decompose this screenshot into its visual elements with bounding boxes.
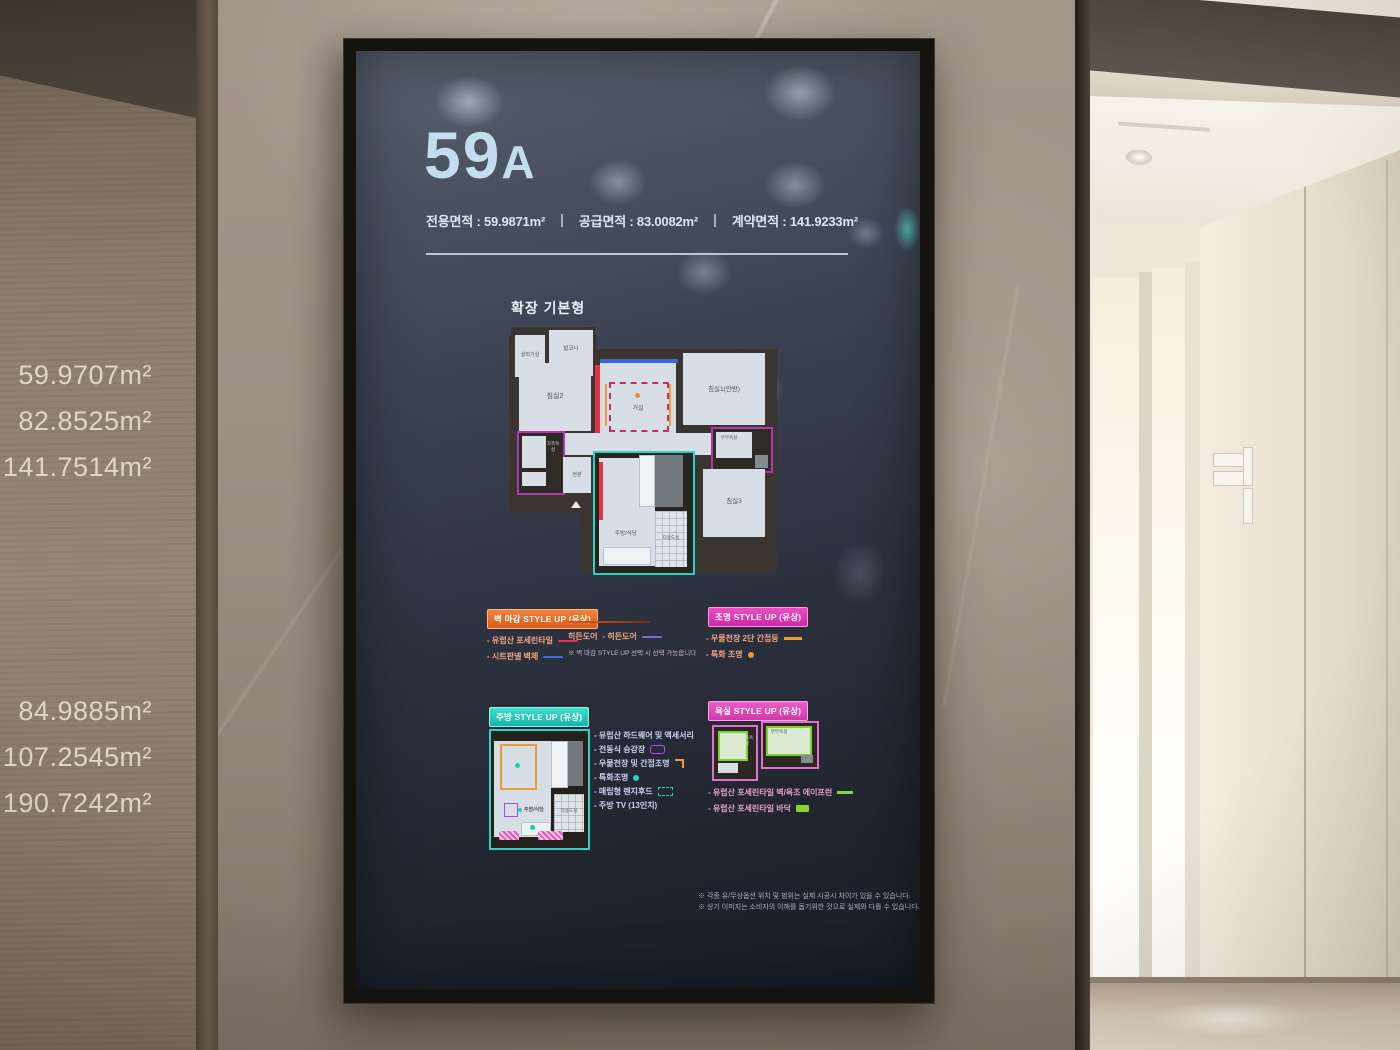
door-mullion <box>1139 272 1152 984</box>
room-utility: 다용도실 <box>655 511 687 567</box>
wall-area-figures-top: 59.9707m² 82.8525m² 141.7514m² <box>0 352 152 490</box>
kd-utility-room: 다용도실 <box>554 794 584 832</box>
area-value: 84.9885m² <box>0 688 152 734</box>
floorplan: 실외기실 발코니 침실2 거실 침실1(안방) <box>509 325 774 573</box>
room-label: 가족욕실 <box>740 735 754 747</box>
kitchen-zone-outline: 다용도실 주방/식당 <box>593 451 695 575</box>
bath-fixture-area <box>718 763 738 773</box>
legend-item-special-lighting: - 특화조명 <box>594 772 694 783</box>
header-divider-line <box>426 253 848 255</box>
disclaimer-line: ※ 각종 유/무상옵션 위치 및 범위는 실제 시공시 차이가 있을 수 있습니… <box>698 891 920 902</box>
room-bed1: 침실1(안방) <box>683 353 765 425</box>
disclaimer-text: ※ 각종 유/무상옵션 위치 및 범위는 실제 시공시 차이가 있을 수 있습니… <box>698 891 920 913</box>
marble-vein <box>218 523 360 756</box>
bath-fixture-area <box>522 472 546 486</box>
floorplan-type-label: 확장 기본형 <box>511 298 585 318</box>
room-label: 발코니 <box>549 344 593 352</box>
bath-gray-closet <box>755 455 768 468</box>
hallway <box>1075 0 1400 1050</box>
marble-vein <box>943 283 1020 707</box>
room-label: 침실1(안방) <box>683 383 765 393</box>
room-label: 실외기실 <box>515 351 545 358</box>
ceiling-vent <box>1118 121 1210 131</box>
kd-teal-dot <box>530 825 535 830</box>
kitchen-counter <box>603 547 651 565</box>
kitchen-styleup-diagram: 다용도실 주방/식당 <box>489 729 590 850</box>
orange-line-swatch <box>784 637 802 640</box>
legend-label: - 시트판넬 벽체 <box>487 651 538 662</box>
legend-item-special-lighting: - 특화 조명 <box>706 649 754 660</box>
door-stile <box>1185 262 1200 984</box>
left-wood-wall: 59.9707m² 82.8525m² 141.7514m² 84.9885m²… <box>0 0 196 1050</box>
exclusive-area: 전용면적 : 59.9871m² <box>426 211 545 230</box>
legend-item-tile-floor: - 유럽산 포세린타일 바닥 <box>708 803 809 814</box>
kd-pink-floor-zone <box>538 831 563 840</box>
hallway-closet-wall <box>1200 150 1400 1010</box>
ceiling-downlight <box>1126 149 1152 165</box>
unit-type-title: 59A <box>424 117 537 193</box>
kd-purple-box <box>504 803 518 817</box>
room-label: 주방/식당 <box>601 529 651 537</box>
legend-label: - 매립형 렌지후드 <box>594 786 653 797</box>
living-light-dot <box>635 393 640 398</box>
purple-rect-swatch <box>650 745 665 754</box>
wall-area-figures-bottom: 84.9885m² 107.2545m² 190.7242m² <box>0 688 152 826</box>
teal-dashed-swatch <box>658 787 673 796</box>
family-bath-diagram: 가족욕실 <box>712 725 758 781</box>
area-value: 107.2545m² <box>0 734 152 780</box>
hallway-floor <box>1090 983 1400 1050</box>
legend-label: - 히든도어 <box>602 631 636 642</box>
room-label: 다용도실 <box>554 808 584 814</box>
legend-label: - 특화 조명 <box>706 649 743 660</box>
light-reflection <box>764 65 836 121</box>
door-sign <box>1213 471 1245 486</box>
door-pull-handle <box>1243 488 1253 524</box>
light-reflection <box>589 159 647 205</box>
room-family-bath: 가족욕실 <box>517 431 565 495</box>
kd-fridge <box>551 741 568 788</box>
overlay-red-tile-strip <box>599 462 603 520</box>
door-sign <box>1213 453 1245 467</box>
kd-kitchen-label-row: 주방/식당 <box>518 806 544 813</box>
green-rect-swatch <box>796 805 809 812</box>
disclaimer-line: ※ 상기 이미지는 소비자의 이해를 돕기위한 것으로 실제와 다를 수 있습니… <box>698 902 920 913</box>
area-value: 190.7242m² <box>0 780 152 826</box>
room-master-bath: 부부욕실 <box>711 427 773 473</box>
legend-label: - 특화조명 <box>594 772 628 783</box>
legend-item-coffered-ceiling: - 우물천장 2단 간접등 <box>706 633 802 644</box>
master-bath-diagram: 부부욕실 <box>761 721 819 769</box>
room-bed2: 침실2 <box>519 363 591 431</box>
room-label: 부부욕실 <box>770 729 788 735</box>
room-label: 주방/식당 <box>524 806 544 813</box>
signage-screen: 59A 전용면적 : 59.9871m² 공급면적 : 83.0082m² 계약… <box>356 51 920 989</box>
kd-pink-floor-zone <box>499 831 519 840</box>
bath-fixture-area <box>522 436 546 468</box>
lighting-styleup-badge: 조명 STYLE UP (유상) <box>708 607 808 627</box>
room-label: 현관 <box>563 471 591 478</box>
room-label: 다용도실 <box>655 535 687 541</box>
green-line-swatch <box>837 791 853 794</box>
signage-display-frame: 59A 전용면적 : 59.9871m² 공급면적 : 83.0082m² 계약… <box>343 38 935 1004</box>
room-label: 침실3 <box>703 495 765 505</box>
legend-item-indirect-lighting: - 우물천장 및 간접조명 <box>594 758 694 769</box>
room-label: 거실 <box>600 403 676 412</box>
legend-label: - 유럽산 포세린타일 벽/욕조 에이프런 <box>708 787 832 798</box>
area-value: 141.7514m² <box>0 444 152 490</box>
wall-legend-note: ※ 벽 마감 STYLE UP 선택 시 선택 가능합니다 <box>568 647 696 657</box>
room-label: 침실2 <box>519 391 591 401</box>
kitchen-dark-closet <box>655 455 683 507</box>
unit-area-summary: 전용면적 : 59.9871m² 공급면적 : 83.0082m² 계약면적 :… <box>426 211 858 230</box>
kitchen-fridge <box>639 455 655 507</box>
teal-reflection <box>894 206 920 252</box>
legend-item-motorized-cabinet: - 전동식 승강장 <box>594 744 694 755</box>
orange-dot-swatch <box>748 652 754 658</box>
door-pull-handle <box>1243 447 1253 486</box>
teal-dot-swatch <box>633 775 639 781</box>
floor-light-reflection <box>1150 1001 1310 1037</box>
room-bed3: 침실3 <box>703 469 765 537</box>
legend-label: - 유럽산 포세린타일 <box>487 635 553 646</box>
divider <box>714 214 716 227</box>
legend-label: - 우물천장 2단 간접등 <box>706 633 779 644</box>
unit-letter: A <box>501 136 536 188</box>
orange-bracket-swatch <box>675 759 684 768</box>
frosted-glass-door-panel <box>1152 268 1185 982</box>
panel-seam <box>1304 180 1306 1030</box>
supply-area: 공급면적 : 83.0082m² <box>579 211 698 230</box>
light-reflection <box>764 161 826 209</box>
bath-styleup-badge: 욕실 STYLE UP (유상) <box>708 701 808 721</box>
room-label: 가족욕실 <box>545 441 561 453</box>
hidden-door-title: 히든도어 <box>568 631 597 642</box>
wall-badge-underline <box>564 621 650 623</box>
panel-seam <box>1386 160 1388 1030</box>
entrance-arrow-icon <box>571 501 581 508</box>
kitchen-legend-items: - 유럽산 하드웨어 및 액세서리 - 전동식 승강장 - 우물천장 및 간접조… <box>594 730 694 811</box>
wall-styleup-badge: 벽 마감 STYLE UP (유상) <box>487 609 598 629</box>
kd-teal-dot <box>515 763 520 768</box>
bath-gray-closet <box>801 755 813 763</box>
frosted-glass-door-panel <box>1093 278 1139 983</box>
legend-item-range-hood: - 매립형 렌지후드 <box>594 786 694 797</box>
legend-label: - 우물천장 및 간접조명 <box>594 758 670 769</box>
blue-line-swatch <box>543 656 563 658</box>
legend-label: - 주방 TV (13인치) <box>594 800 657 811</box>
legend-item-hidden-door: 히든도어 - 히든도어 <box>568 631 662 642</box>
legend-item-sheet-panel: - 시트판넬 벽체 <box>487 651 563 662</box>
legend-label: - 유럽산 포세린타일 바닥 <box>708 803 791 814</box>
legend-label: - 유럽산 하드웨어 및 액세서리 <box>594 730 694 741</box>
showroom-scene: 59.9707m² 82.8525m² 141.7514m² 84.9885m²… <box>0 0 1400 1050</box>
area-value: 59.9707m² <box>0 352 152 398</box>
legend-item-kitchen-tv: - 주방 TV (13인치) <box>594 800 694 811</box>
wall-corner-trim <box>196 0 218 1050</box>
light-reflection <box>676 249 732 295</box>
legend-item-porcelain-tile: - 유럽산 포세린타일 <box>487 635 578 646</box>
kitchen-styleup-badge: 주방 STYLE UP (유상) <box>489 707 589 727</box>
divider <box>561 214 563 227</box>
area-value: 82.8525m² <box>0 398 152 444</box>
kd-teal-dot <box>518 808 522 812</box>
room-entrance: 현관 <box>563 457 591 493</box>
unit-number: 59 <box>424 118 501 192</box>
hallway-door-frame-column <box>1075 0 1090 1050</box>
contract-area: 계약면적 : 141.9233m² <box>732 211 858 230</box>
wood-grain-texture <box>0 0 196 1050</box>
light-reflection <box>834 541 886 605</box>
purple-line-swatch <box>642 636 662 638</box>
legend-label: - 전동식 승강장 <box>594 744 645 755</box>
kd-dark-closet <box>568 741 583 786</box>
legend-item-tile-apron: - 유럽산 포세린타일 벽/욕조 에이프런 <box>708 787 853 798</box>
room-label: 부부욕실 <box>719 435 739 441</box>
legend-item-hardware: - 유럽산 하드웨어 및 액세서리 <box>594 730 694 741</box>
